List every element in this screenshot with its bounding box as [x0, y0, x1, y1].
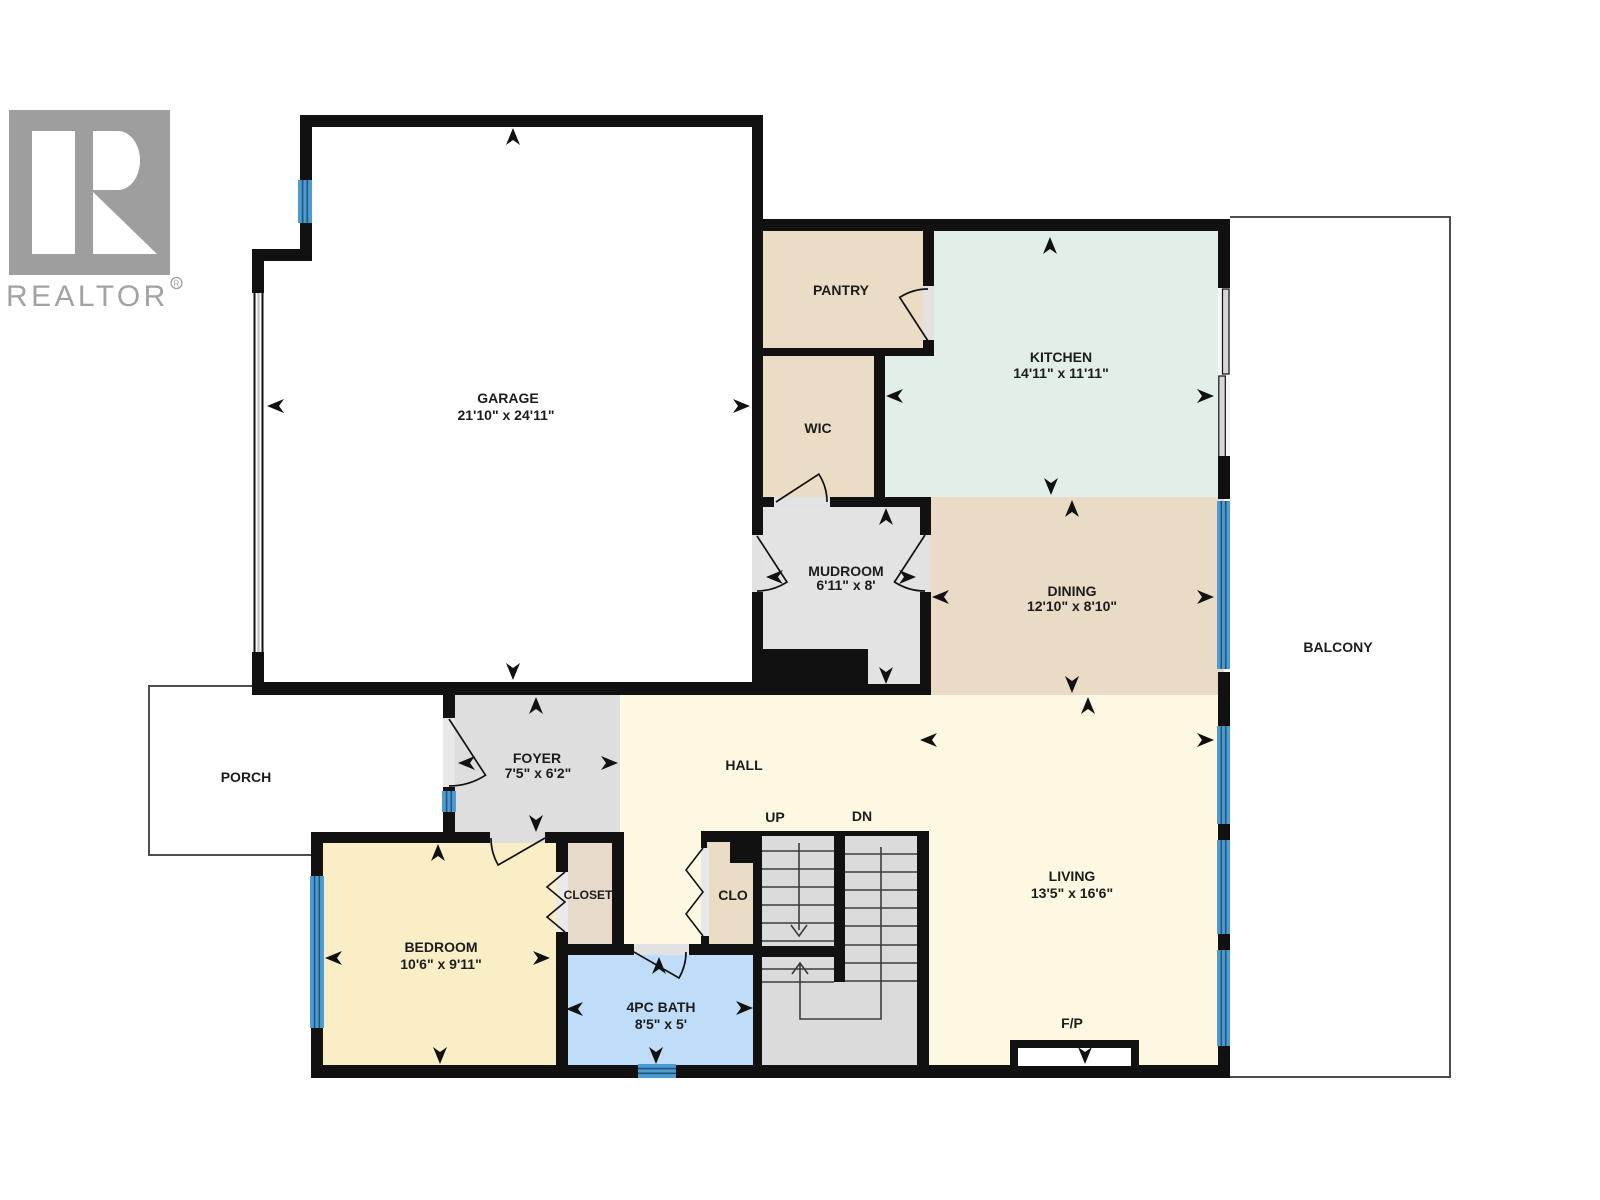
svg-text:WIC: WIC [804, 420, 831, 436]
svg-text:13'5" x 16'6": 13'5" x 16'6" [1031, 885, 1113, 901]
svg-text:DN: DN [852, 808, 872, 824]
svg-text:REALTOR: REALTOR [6, 280, 169, 313]
svg-text:CLOSET: CLOSET [564, 888, 613, 902]
svg-text:KITCHEN: KITCHEN [1030, 349, 1092, 365]
svg-text:8'5" x 5': 8'5" x 5' [635, 1016, 687, 1032]
svg-text:R: R [174, 280, 180, 289]
svg-text:4PC BATH: 4PC BATH [627, 999, 696, 1015]
svg-text:DINING: DINING [1048, 583, 1097, 599]
svg-text:LIVING: LIVING [1049, 868, 1096, 884]
svg-text:FOYER: FOYER [513, 750, 561, 766]
svg-text:CLO: CLO [718, 887, 748, 903]
svg-text:UP: UP [765, 809, 784, 825]
svg-text:HALL: HALL [725, 757, 763, 773]
svg-text:PORCH: PORCH [221, 769, 272, 785]
svg-text:6'11" x 8': 6'11" x 8' [816, 577, 875, 593]
svg-text:BALCONY: BALCONY [1303, 639, 1373, 655]
svg-text:10'6" x 9'11": 10'6" x 9'11" [400, 956, 481, 972]
svg-text:PANTRY: PANTRY [813, 282, 870, 298]
svg-text:GARAGE: GARAGE [477, 390, 538, 406]
svg-text:BEDROOM: BEDROOM [404, 939, 477, 955]
svg-text:7'5" x 6'2": 7'5" x 6'2" [505, 765, 572, 781]
svg-text:21'10" x 24'11": 21'10" x 24'11" [457, 407, 554, 423]
svg-text:12'10" x 8'10": 12'10" x 8'10" [1027, 598, 1117, 614]
svg-text:F/P: F/P [1061, 1015, 1083, 1031]
svg-text:14'11" x 11'11": 14'11" x 11'11" [1013, 365, 1108, 381]
